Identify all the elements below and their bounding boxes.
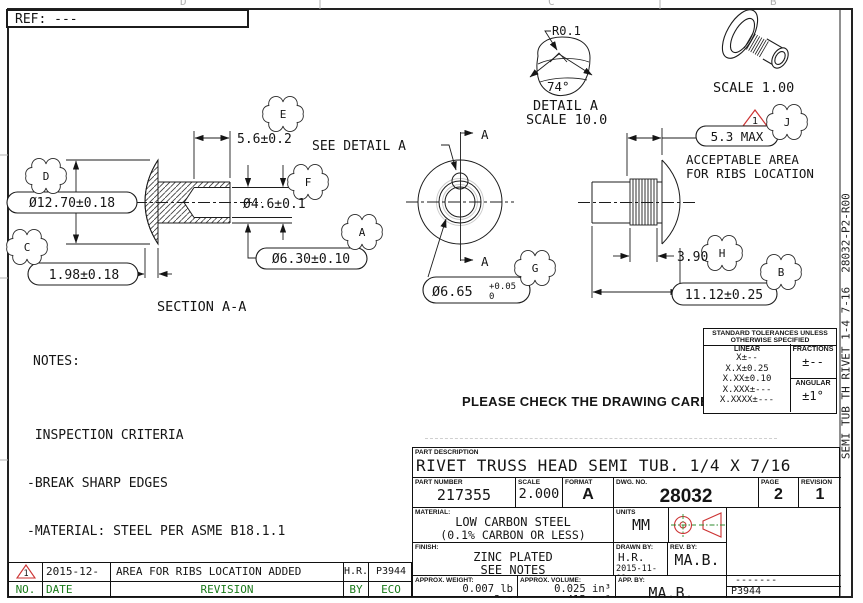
weight-value-g: 3 g xyxy=(413,595,517,598)
empty-cell xyxy=(727,508,841,576)
area-note-2: FOR RIBS LOCATION xyxy=(686,166,814,181)
revision-header-date: DATE xyxy=(43,582,111,598)
dim-head-height xyxy=(137,248,172,278)
revision-header-by: BY xyxy=(344,582,369,598)
ref-box: REF: --- xyxy=(6,9,249,28)
drawing-sheet: Ø12.70±0.18 1.98±0.18 5.6±0.2 Ø4.6±0.1 Ø… xyxy=(0,0,863,603)
dwg-no-label: DWG. NO. xyxy=(614,478,758,486)
revision-row-eco: P3944 xyxy=(369,563,413,582)
format-label: FORMAT xyxy=(563,478,613,486)
eco-number-value: P3944 xyxy=(727,587,841,597)
zone-letter-d: D xyxy=(180,0,187,8)
revision-row-description: AREA FOR RIBS LOCATION ADDED xyxy=(111,563,344,582)
part-description-cell: PART DESCRIPTION RIVET TRUSS HEAD SEMI T… xyxy=(413,448,841,478)
units-label: UNITS xyxy=(614,508,668,516)
tolerance-linear-row: X.X±0.25 xyxy=(704,364,790,375)
cut-label-top: A xyxy=(481,127,489,142)
tolerance-angular-cell: ANGULAR ±1° xyxy=(790,378,836,412)
tolerance-fractions-value: ±-- xyxy=(790,353,836,369)
section-title: SECTION A-A xyxy=(157,299,246,315)
drawn-date-value: 2015-11-09 xyxy=(614,564,667,576)
page-cell: PAGE 2 xyxy=(759,478,799,508)
tolerance-fractions-label: FRACTIONS xyxy=(790,344,836,353)
cloud-letter-j: J xyxy=(784,116,791,129)
cloud-letter-a: A xyxy=(359,226,366,239)
third-angle-projection-icon xyxy=(669,508,726,541)
dim-text-head-height: 1.98±0.18 xyxy=(49,268,119,283)
cloud-letter-h: H xyxy=(719,247,726,260)
dim-text-head-dia: Ø12.70±0.18 xyxy=(29,196,115,211)
part-description-value: RIVET TRUSS HEAD SEMI TUB. 1/4 X 7/16 RI… xyxy=(413,456,841,478)
format-value: A xyxy=(563,486,613,504)
revision-row-date: 2015-12-15 xyxy=(43,563,111,582)
collar-tol-bot: 0 xyxy=(489,292,494,302)
part-number-label: PART NUMBER xyxy=(413,478,515,486)
scale-label: SCALE xyxy=(516,478,562,486)
front-view xyxy=(406,132,514,277)
cloud-letter-b: B xyxy=(778,266,785,279)
dim-text-length: 11.12±0.25 xyxy=(685,288,763,303)
detail-angle: 74° xyxy=(547,79,570,94)
finish-cell: FINISH: ZINC PLATED SEE NOTES xyxy=(413,543,614,576)
iso-scale: SCALE 1.00 xyxy=(713,80,794,96)
iso-view xyxy=(715,4,791,71)
dim-text-ribs-max: 5.3 MAX xyxy=(711,129,764,144)
page-label: PAGE xyxy=(759,478,798,486)
material-value-2: (0.1% CARBON OR LESS) xyxy=(413,529,613,542)
dim-hole-depth xyxy=(194,131,230,179)
zone-ticks xyxy=(0,0,660,460)
cut-label-bottom: A xyxy=(481,254,489,269)
ribs xyxy=(630,179,657,225)
revision-label: REVISION xyxy=(799,478,841,486)
section-cut-line xyxy=(461,132,474,261)
detail-scale: SCALE 10.0 xyxy=(526,112,607,128)
drawn-by-cell: DRAWN BY: H.R. 2015-11-09 xyxy=(614,543,668,576)
revision-header-revision: REVISION xyxy=(111,582,344,598)
tolerance-box: STANDARD TOLERANCES UNLESS OTHERWISE SPE… xyxy=(703,328,837,414)
format-cell: FORMAT A xyxy=(563,478,614,508)
revision-triangle-icon: 1 xyxy=(13,563,39,580)
dim-text-collar-dia: Ø6.65 xyxy=(432,284,473,300)
see-detail-label: SEE DETAIL A xyxy=(312,139,406,154)
finish-value-2: SEE NOTES xyxy=(413,564,613,576)
tolerance-angular-label: ANGULAR xyxy=(790,378,836,387)
tolerance-linear-cell: LINEAR X±-- X.X±0.25 X.XX±0.10 X.XXX±---… xyxy=(704,344,791,412)
part-description-label: PART DESCRIPTION xyxy=(413,448,841,456)
note-line: -MATERIAL: STEEL PER ASME B18.1.1 xyxy=(27,524,356,540)
drawn-by-value: H.R. xyxy=(614,551,667,564)
eco-dashes-cell: ------- xyxy=(727,576,841,587)
dim-ribs-width xyxy=(613,228,674,262)
tolerance-linear-row: X.XX±0.10 xyxy=(704,374,790,385)
edge-code-bottom: SEMI_TUB_TH_RIVET_1-4_7-16 xyxy=(840,287,853,459)
scale-value: 2.000 xyxy=(516,486,562,502)
collar-tol-top: +0.05 xyxy=(489,282,516,292)
volume-cell: APPROX. VOLUME: 0.025 in³ 415 mm³ xyxy=(518,576,616,598)
dim-text-hole-dia: Ø4.6±0.1 xyxy=(243,197,306,212)
collar-dia-leader xyxy=(428,219,446,277)
dim-text-hole-depth: 5.6±0.2 xyxy=(237,132,292,147)
tolerance-linear-row: X.XXX±--- xyxy=(704,385,790,396)
tolerance-header-line1: STANDARD TOLERANCES UNLESS xyxy=(704,330,836,337)
notes-title: NOTES: xyxy=(33,354,80,369)
units-value: MM xyxy=(614,516,668,534)
zone-letter-b: B xyxy=(770,0,777,8)
dim-text-ribs-width: 3.90 xyxy=(677,250,708,265)
rev-by-cell: REV. BY: MA.B. xyxy=(668,543,727,576)
dwg-no-cell: DWG. NO. 28032 xyxy=(614,478,759,508)
dim-text-shank-dia: Ø6.30±0.10 xyxy=(272,252,350,267)
app-by-label: APP. BY: xyxy=(616,576,726,584)
tolerance-fractions-cell: FRACTIONS ±-- xyxy=(790,344,836,379)
revision-value: 1 xyxy=(799,486,841,504)
weight-cell: APPROX. WEIGHT: 0.007 lb 3 g xyxy=(413,576,518,598)
cloud-letter-f: F xyxy=(305,176,312,189)
revision-row-no-cell: 1 xyxy=(9,563,43,582)
material-cell: MATERIAL: LOW CARBON STEEL (0.1% CARBON … xyxy=(413,508,614,543)
drawn-by-label: DRAWN BY: xyxy=(614,543,667,551)
cloud-letter-d: D xyxy=(43,170,50,183)
units-cell: UNITS MM xyxy=(614,508,669,543)
annotations: Ø12.70±0.18 1.98±0.18 5.6±0.2 Ø4.6±0.1 Ø… xyxy=(24,24,814,315)
revision-row-no: 1 xyxy=(23,569,28,579)
projection-cell xyxy=(669,508,727,543)
rev-by-label: REV. BY: xyxy=(668,543,726,551)
part-number-cell: PART NUMBER 217355 xyxy=(413,478,516,508)
note-line: -BREAK SHARP EDGES xyxy=(27,476,356,492)
revision-cell: REVISION 1 xyxy=(799,478,841,508)
cloud-letter-g: G xyxy=(532,262,539,275)
cloud-letter-c: C xyxy=(24,241,31,254)
title-block: PART DESCRIPTION RIVET TRUSS HEAD SEMI T… xyxy=(412,447,840,597)
eco-dashes-value: ------- xyxy=(727,576,841,586)
page-value: 2 xyxy=(759,486,798,504)
eco-number-cell: P3944 xyxy=(727,587,841,598)
tolerance-linear-row: X.XXXX±--- xyxy=(704,395,790,406)
see-detail-leader xyxy=(441,145,456,170)
app-by-value: MA.B. xyxy=(616,584,726,598)
revision-header-eco: ECO xyxy=(369,582,413,598)
rev-by-value: MA.B. xyxy=(668,551,726,569)
edge-code-top: 28032-P2-R00 xyxy=(840,193,853,272)
zone-letter-c: C xyxy=(548,0,555,8)
tolerance-angular-value: ±1° xyxy=(790,387,836,403)
revision-marker-number: 1 xyxy=(752,116,758,127)
revision-header-no: NO. xyxy=(9,582,43,598)
tolerance-linear-row: X±-- xyxy=(704,353,790,364)
detail-radius: R0.1 xyxy=(552,24,581,38)
part-number-value: 217355 xyxy=(413,486,515,504)
volume-value-mm3: 415 mm³ xyxy=(518,595,615,598)
dim-length xyxy=(592,226,680,298)
dwg-no-value: 28032 xyxy=(614,486,758,508)
revision-table: 1 2015-12-15 AREA FOR RIBS LOCATION ADDE… xyxy=(8,562,412,597)
scale-cell: SCALE 2.000 xyxy=(516,478,563,508)
revision-row-by: H.R. xyxy=(344,563,369,582)
cloud-letter-e: E xyxy=(280,108,287,121)
area-note-1: ACCEPTABLE AREA xyxy=(686,152,799,167)
tolerance-linear-label: LINEAR xyxy=(704,344,790,353)
note-line: INSPECTION CRITERIA xyxy=(27,428,356,444)
app-by-cell: APP. BY: MA.B. xyxy=(616,576,727,598)
ghost-artifact-line xyxy=(425,438,777,439)
